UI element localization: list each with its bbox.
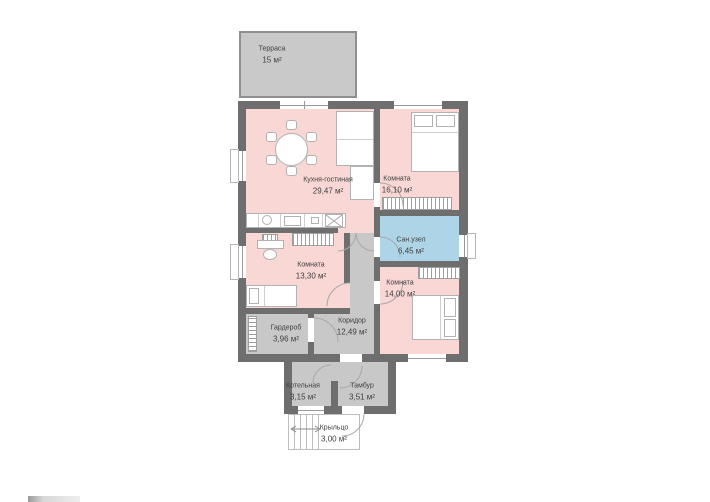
chair [286,120,297,130]
sink-icon [262,215,272,225]
chair [306,132,317,142]
window-bedroom-left [238,246,246,278]
wall-segment [364,406,396,414]
window-bedroom-bottom [408,354,446,362]
room-label-bedroom-top: Комната 16,10 м² [382,175,412,194]
wardrobe-cabinet [382,197,452,210]
desk [257,240,284,249]
wall-segment [380,210,459,216]
room-label-corridor: Коридор 12,49 м² [337,317,367,336]
window-sill [230,244,239,280]
wall-segment [328,101,394,109]
blanket-line [412,132,458,133]
oven-icon [284,216,301,226]
wall-segment [331,381,338,406]
chair [266,132,277,142]
counter-divider [280,214,281,227]
room-label-vestibule: Тамбур 3,51 м² [349,382,375,401]
chair [306,155,317,165]
sofa-seam [337,139,373,140]
chair [286,166,297,176]
wall-segment [308,314,314,318]
appliance-icon [311,217,319,224]
blanket-line [440,296,441,339]
dining-table [275,133,308,166]
room-label-boiler: Котельная 3,15 м² [286,382,320,401]
window-boiler [298,406,324,414]
watermark [28,496,80,502]
wall-segment [446,354,468,362]
wall-segment [308,342,314,354]
window-bedroom-top [394,101,442,109]
floor-plan: Терраса 15 м² Кухня-гостиная 29,47 м² Ко… [0,0,710,502]
wall-segment [374,304,380,354]
room-label-wardrobe: Гардероб 3,96 м² [271,324,302,343]
porch-step [312,414,313,450]
wall-segment [246,308,350,314]
room-label-terrace: Терраса 15 м² [259,45,286,64]
wall-segment [238,278,246,362]
chair [266,155,277,165]
pillow [436,115,455,127]
pillow [249,288,259,304]
room-label-bedroom-left: Комната 13,30 м² [296,261,326,280]
counter-divider [258,214,259,227]
porch-step [306,414,307,450]
counter-divider [322,214,323,227]
pillow [444,298,456,317]
room-label-bedroom-bottom: Комната 14,00 м² [385,279,415,298]
wall-segment [362,354,408,362]
window-kitchen [238,151,246,181]
room-label-bathroom: Сан.узел 6,45 м² [396,236,425,255]
wall-segment [284,406,298,414]
wall-segment [459,101,468,235]
desk-chair [263,249,277,260]
room-label-kitchen-living: Кухня-гостиная 29,47 м² [303,176,353,195]
wardrobe-shelving [248,316,257,352]
window-terrace [280,101,328,109]
blanket-line [264,286,265,306]
porch-step [294,414,295,450]
room-terrace [239,31,357,98]
pillow [444,319,456,337]
wardrobe-cabinet [292,233,334,246]
wall-segment [238,354,340,362]
sofa [350,166,374,200]
wardrobe-cabinet [418,267,460,279]
room-label-porch: Крыльцо 3,00 м² [320,424,349,443]
window-sill [230,149,239,183]
pillow [414,115,433,127]
wall-segment [374,109,380,183]
wall-segment [238,181,246,246]
wall-segment [459,257,468,362]
porch-step [300,414,301,450]
wall-segment [324,406,342,414]
window-sill [467,233,476,259]
wall-segment [238,101,246,151]
counter-divider [304,214,305,227]
wall-segment [344,233,350,283]
stove-icon [325,214,343,227]
